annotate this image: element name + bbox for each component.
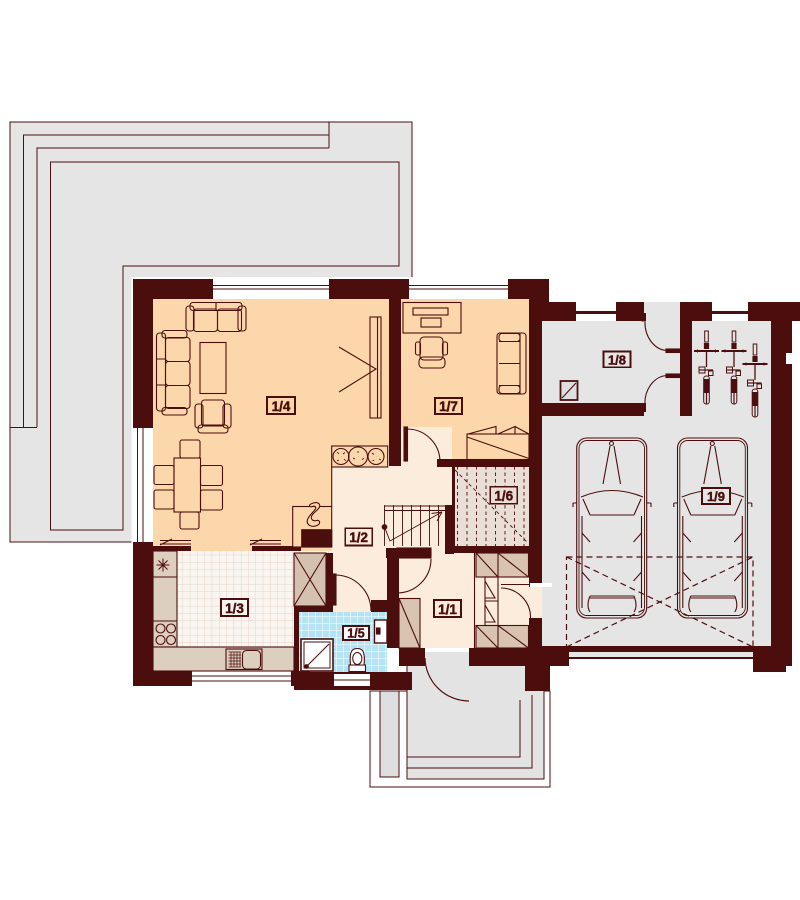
svg-text:1/5: 1/5	[347, 627, 364, 641]
svg-text:1/3: 1/3	[225, 601, 244, 616]
svg-text:1/6: 1/6	[494, 489, 513, 504]
svg-text:1/7: 1/7	[439, 399, 458, 414]
svg-text:1/2: 1/2	[349, 530, 368, 545]
svg-text:1/1: 1/1	[438, 602, 457, 617]
svg-text:1/8: 1/8	[608, 353, 626, 368]
svg-text:1/4: 1/4	[272, 399, 291, 414]
svg-text:1/9: 1/9	[707, 489, 725, 504]
